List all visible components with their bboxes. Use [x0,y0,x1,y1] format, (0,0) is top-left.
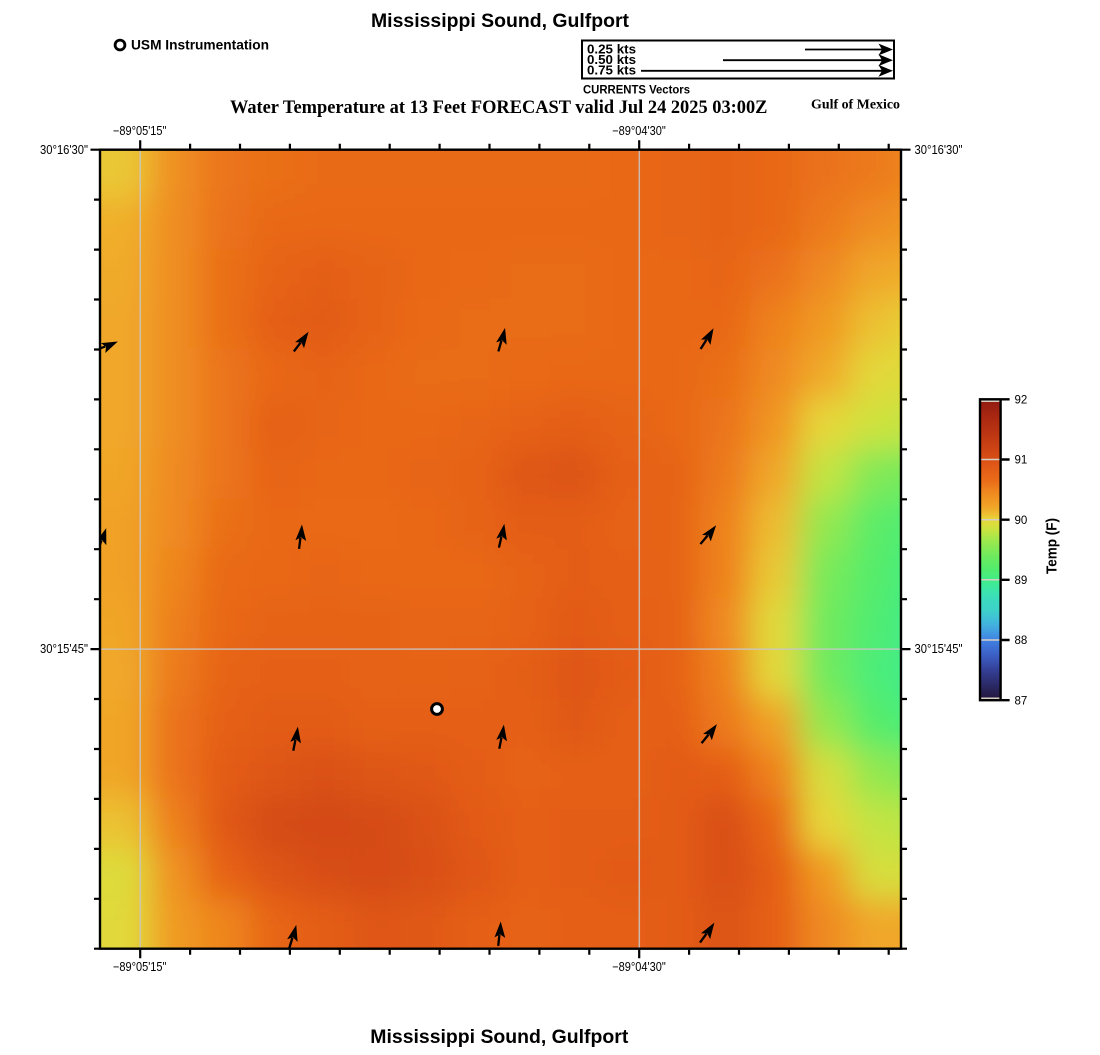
svg-text:USM Instrumentation: USM Instrumentation [131,37,269,53]
svg-text:CURRENTS Vectors: CURRENTS Vectors [583,83,690,97]
svg-text:89: 89 [1015,575,1028,587]
svg-text:−89°05'15": −89°05'15" [113,124,167,138]
svg-text:Water Temperature at 13 Feet F: Water Temperature at 13 Feet FORECAST va… [230,98,768,118]
svg-text:30°15'45": 30°15'45" [915,642,963,656]
svg-text:Mississippi Sound, Gulfport: Mississippi Sound, Gulfport [370,1027,629,1048]
svg-text:90: 90 [1015,515,1028,527]
svg-text:−89°04'30": −89°04'30" [612,960,666,974]
svg-text:−89°05'15": −89°05'15" [113,960,167,974]
svg-text:0.75 kts: 0.75 kts [587,64,636,78]
svg-text:92: 92 [1015,395,1028,407]
svg-text:Temp (F): Temp (F) [1045,518,1061,574]
svg-text:88: 88 [1015,635,1028,647]
svg-text:30°15'45": 30°15'45" [40,642,88,656]
svg-text:−89°04'30": −89°04'30" [612,124,666,138]
svg-text:87: 87 [1015,695,1028,707]
svg-text:Gulf of Mexico: Gulf of Mexico [811,97,900,112]
svg-text:91: 91 [1015,455,1028,467]
svg-text:Mississippi Sound, Gulfport: Mississippi Sound, Gulfport [371,11,630,32]
svg-text:30°16'30": 30°16'30" [915,143,963,157]
svg-text:30°16'30": 30°16'30" [40,143,88,157]
